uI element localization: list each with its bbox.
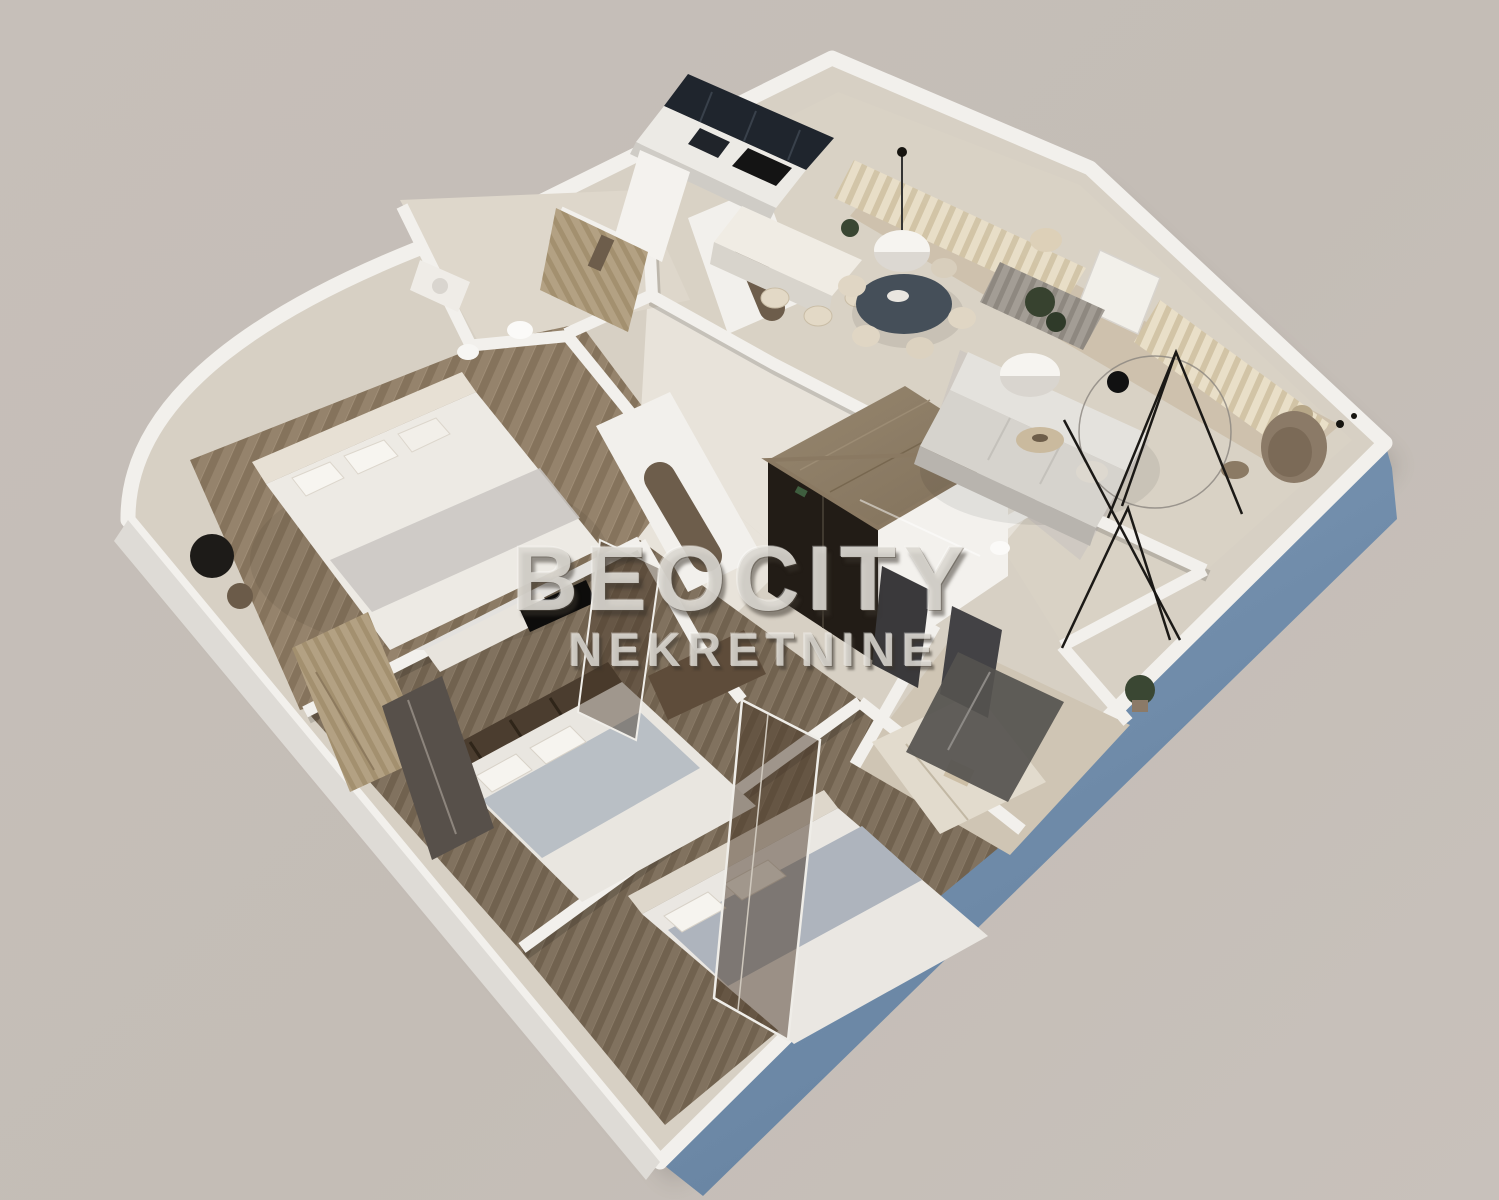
dining-chair [852, 325, 880, 347]
rattan-chair [1030, 228, 1062, 252]
floor-plan-svg [0, 0, 1499, 1200]
coffee-table-decor [1032, 434, 1048, 442]
floor-plan-render: BEOCITY NEKRETNINE [0, 0, 1499, 1200]
pendant-cap [897, 147, 907, 157]
dining-chair [931, 258, 957, 278]
bar-stool [804, 306, 832, 326]
plant-pot [1132, 700, 1148, 712]
decor-bottle [1336, 420, 1344, 428]
dining-decor [887, 290, 909, 302]
bath2-wc [990, 541, 1010, 555]
wash-basin [432, 278, 448, 294]
dining-chair [948, 307, 976, 329]
bidet [457, 344, 479, 360]
island-plant [841, 219, 859, 237]
sphere-lamp [1107, 371, 1129, 393]
side-table-small [227, 583, 253, 609]
dining-chair [838, 275, 866, 297]
plant-living-2 [1046, 312, 1066, 332]
dining-table [856, 274, 952, 334]
bar-stool [761, 288, 789, 308]
side-table-black [190, 534, 234, 578]
decor-bottle [1351, 413, 1357, 419]
plant-living [1025, 287, 1055, 317]
dining-chair [906, 337, 934, 359]
lounge-chair-seat [1268, 427, 1312, 477]
toilet [507, 321, 533, 339]
